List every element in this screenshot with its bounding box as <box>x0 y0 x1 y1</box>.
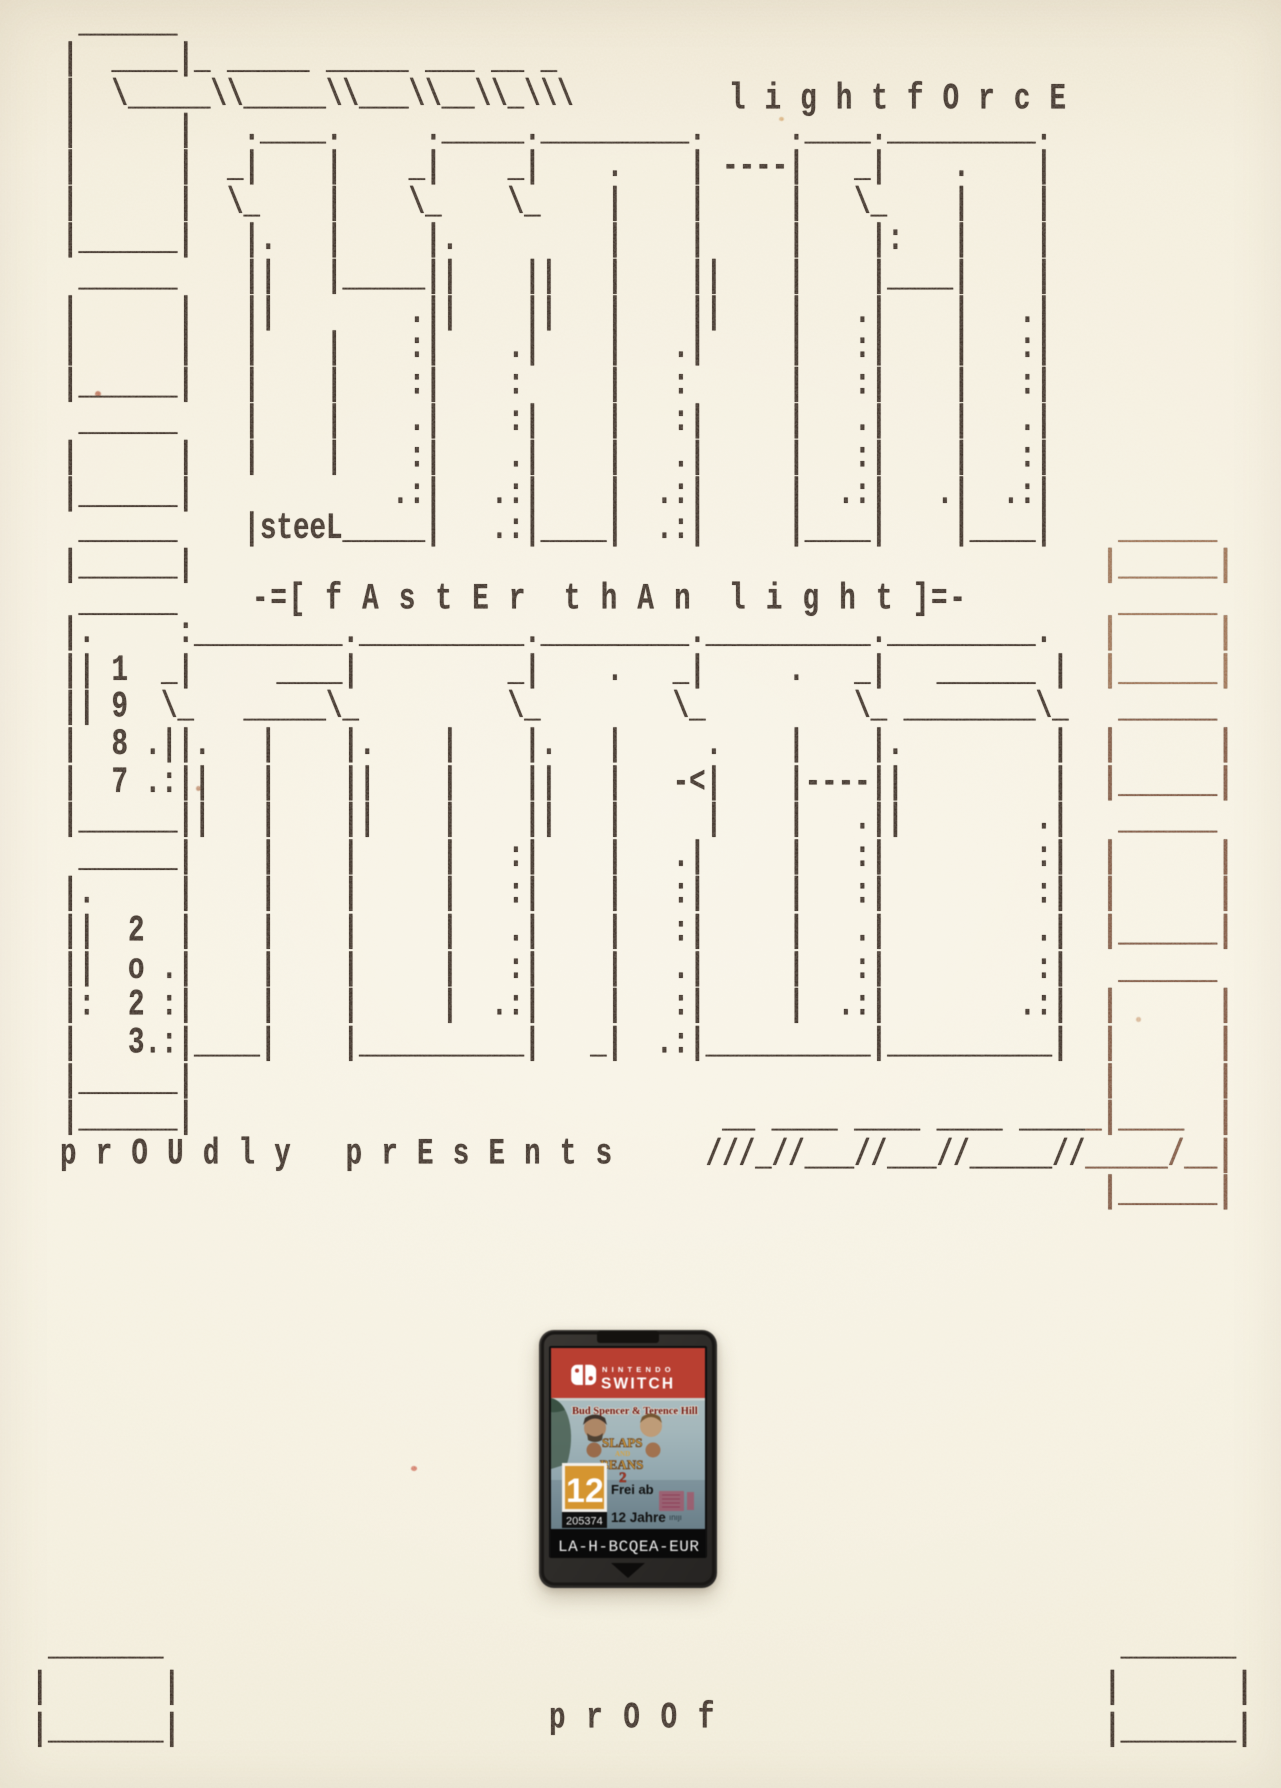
svg-text:205374: 205374 <box>566 1516 603 1528</box>
svg-text:SWITCH: SWITCH <box>601 1376 675 1393</box>
svg-text:SLAPS: SLAPS <box>602 1435 642 1450</box>
svg-text:LA-H-BCQEA-EUR: LA-H-BCQEA-EUR <box>558 1538 699 1556</box>
svg-text:ınıȷı: ınıȷı <box>669 1513 682 1522</box>
svg-text:12: 12 <box>566 1472 604 1510</box>
svg-text:NINTENDO: NINTENDO <box>602 1365 675 1374</box>
svg-text:12 Jahre: 12 Jahre <box>611 1510 666 1525</box>
svg-text:Frei ab: Frei ab <box>611 1482 654 1497</box>
